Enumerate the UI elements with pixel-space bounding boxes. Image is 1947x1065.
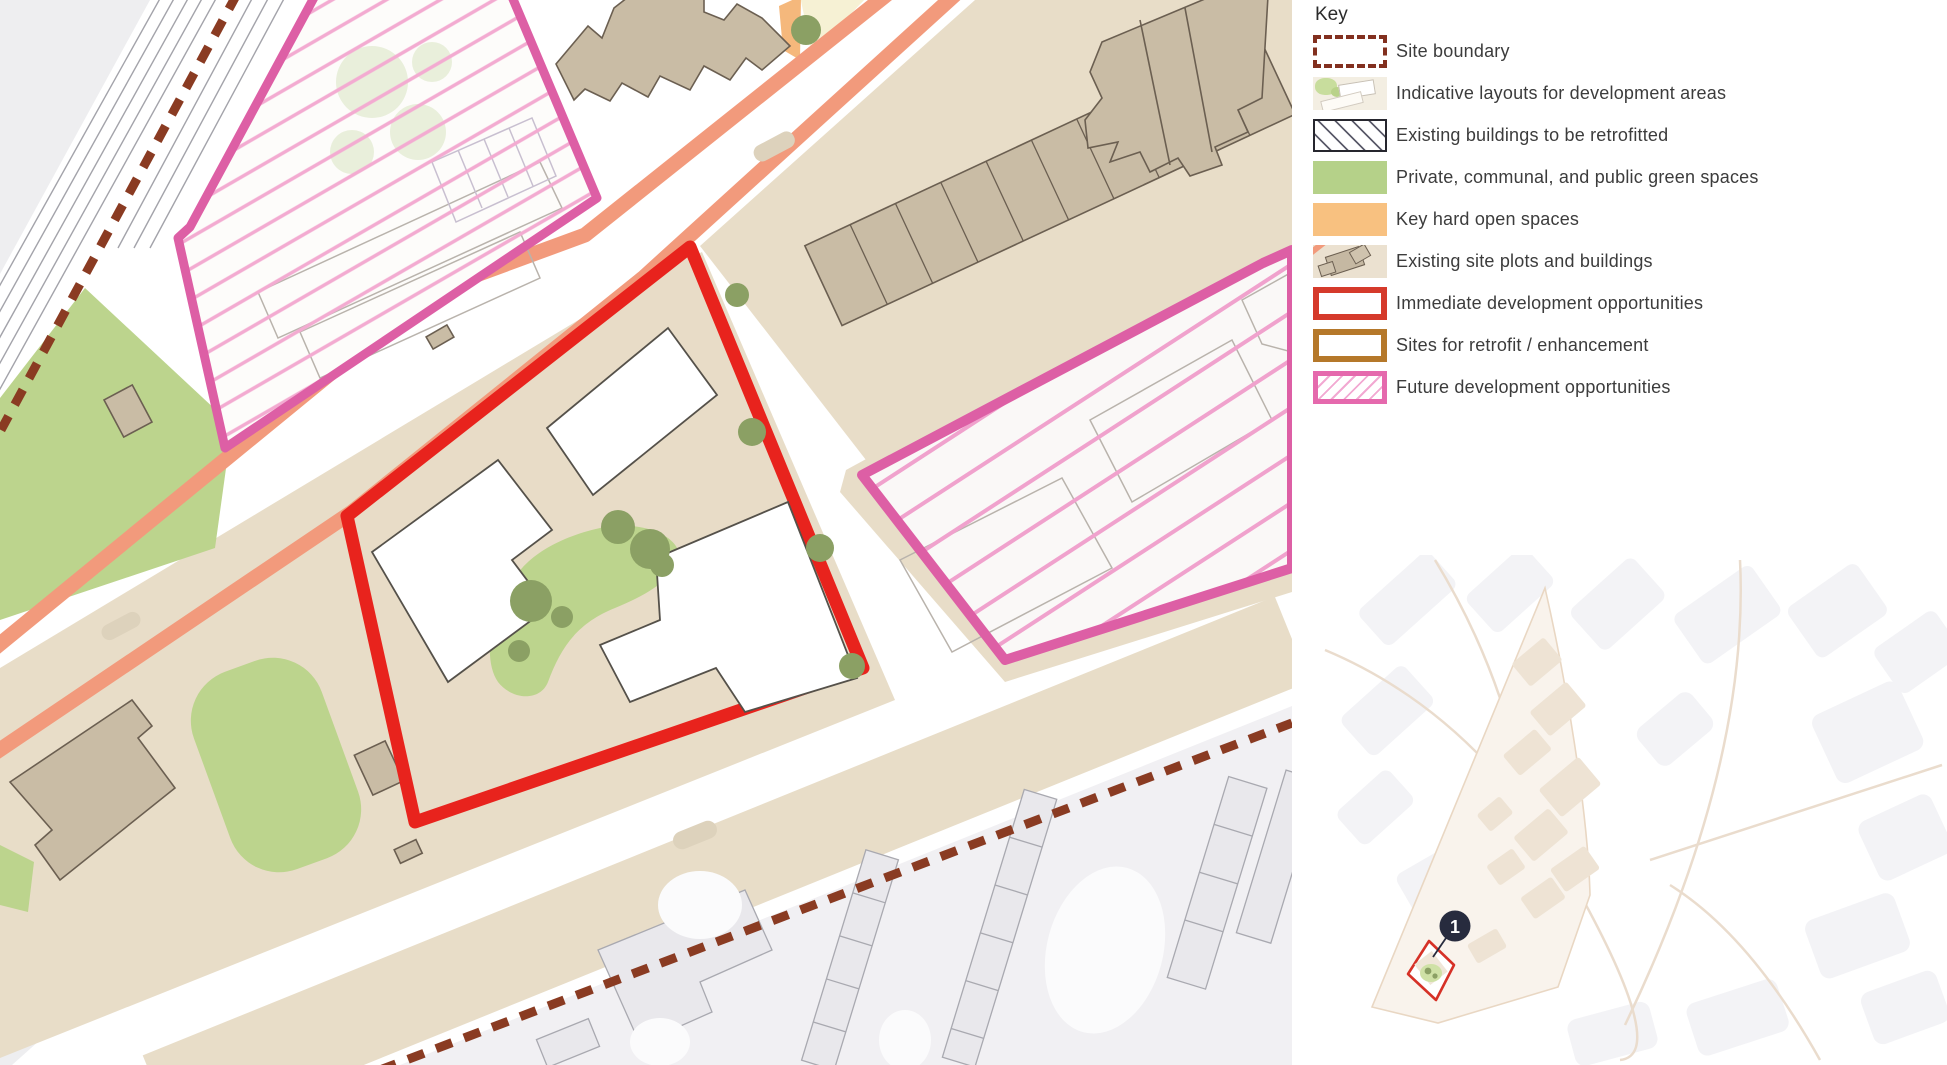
existing-plots-swatch-icon bbox=[1313, 245, 1387, 278]
legend-item-hard-spaces: Key hard open spaces bbox=[1313, 203, 1933, 236]
retrofit-sites-swatch-icon bbox=[1313, 329, 1387, 362]
retrofit-hatch-swatch-icon bbox=[1313, 119, 1387, 152]
inset-locator-map: 1 bbox=[1320, 555, 1947, 1065]
legend-item-green-spaces: Private, communal, and public green spac… bbox=[1313, 161, 1933, 194]
hard-spaces-swatch-icon bbox=[1313, 203, 1387, 236]
green-spaces-swatch-icon bbox=[1313, 161, 1387, 194]
legend-item-retrofit-sites: Sites for retrofit / enhancement bbox=[1313, 329, 1933, 362]
legend-label: Site boundary bbox=[1396, 41, 1510, 62]
legend-item-immediate-development: Immediate development opportunities bbox=[1313, 287, 1933, 320]
legend-item-retrofitted-buildings: Existing buildings to be retrofitted bbox=[1313, 119, 1933, 152]
legend-item-indicative-layouts: Indicative layouts for development areas bbox=[1313, 77, 1933, 110]
legend-label: Future development opportunities bbox=[1396, 377, 1671, 398]
legend: Key Site boundary Indicative layouts for… bbox=[1313, 4, 1933, 413]
main-map bbox=[0, 0, 1292, 1065]
legend-label: Indicative layouts for development areas bbox=[1396, 83, 1726, 104]
legend-label: Sites for retrofit / enhancement bbox=[1396, 335, 1649, 356]
legend-label: Existing buildings to be retrofitted bbox=[1396, 125, 1668, 146]
marker-number: 1 bbox=[1450, 917, 1460, 937]
legend-item-future-development: Future development opportunities bbox=[1313, 371, 1933, 404]
immediate-development-swatch-icon bbox=[1313, 287, 1387, 320]
legend-title: Key bbox=[1315, 4, 1933, 26]
legend-item-site-boundary: Site boundary bbox=[1313, 35, 1933, 68]
indicative-layouts-swatch-icon bbox=[1313, 77, 1387, 110]
legend-label: Existing site plots and buildings bbox=[1396, 251, 1653, 272]
site-boundary-swatch-icon bbox=[1313, 35, 1387, 68]
legend-label: Immediate development opportunities bbox=[1396, 293, 1703, 314]
legend-label: Private, communal, and public green spac… bbox=[1396, 167, 1759, 188]
masterplan-figure: Key Site boundary Indicative layouts for… bbox=[0, 0, 1947, 1065]
future-development-swatch-icon bbox=[1313, 371, 1387, 404]
legend-item-existing-plots: Existing site plots and buildings bbox=[1313, 245, 1933, 278]
legend-label: Key hard open spaces bbox=[1396, 209, 1579, 230]
